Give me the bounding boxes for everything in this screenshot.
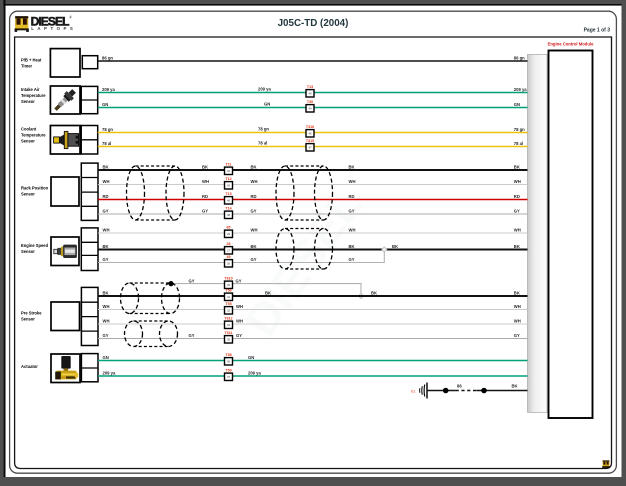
svg-text:T610: T610 [224, 277, 232, 281]
svg-text:26: 26 [227, 262, 231, 266]
svg-text:WH: WH [514, 318, 521, 323]
svg-text:49: 49 [227, 255, 231, 259]
svg-text:46: 46 [227, 199, 231, 203]
svg-text:T611: T611 [225, 331, 233, 335]
svg-text:BK: BK [265, 290, 271, 295]
svg-text:WH: WH [103, 227, 110, 232]
svg-text:T13: T13 [307, 85, 313, 89]
svg-text:LAPTOPS: LAPTOPS [31, 26, 76, 31]
svg-text:209 ya: 209 ya [514, 87, 527, 92]
svg-text:43: 43 [227, 184, 231, 188]
svg-text:31: 31 [227, 295, 231, 299]
svg-text:Engine Speed: Engine Speed [21, 243, 49, 248]
svg-text:78 al: 78 al [514, 141, 523, 146]
svg-text:BK: BK [349, 244, 355, 249]
svg-text:BK: BK [103, 290, 109, 295]
svg-text:GY: GY [103, 333, 109, 338]
svg-text:Engine Control Module: Engine Control Module [548, 41, 594, 46]
svg-text:T316: T316 [306, 125, 314, 129]
svg-text:35: 35 [227, 338, 231, 342]
svg-text:BK: BK [349, 164, 355, 169]
svg-text:GY: GY [202, 208, 208, 213]
svg-text:GN: GN [248, 355, 254, 360]
svg-text:Sensor: Sensor [21, 316, 35, 321]
svg-text:WH: WH [103, 179, 110, 184]
svg-text:GY: GY [103, 257, 109, 262]
svg-text:T12: T12 [225, 177, 231, 181]
svg-text:E1: E1 [411, 389, 415, 393]
svg-text:78 gn: 78 gn [258, 126, 269, 131]
svg-text:WH: WH [251, 227, 258, 232]
svg-text:GN: GN [514, 102, 520, 107]
svg-text:209 ya: 209 ya [248, 370, 261, 375]
svg-text:GY: GY [103, 208, 109, 213]
svg-text:GY: GY [236, 278, 242, 283]
svg-text:Actuator: Actuator [21, 364, 38, 369]
svg-text:Temperature: Temperature [21, 93, 46, 98]
svg-text:WH: WH [103, 304, 110, 309]
svg-text:T612: T612 [224, 317, 232, 321]
svg-text:86 gn: 86 gn [514, 55, 525, 60]
svg-text:209 ya: 209 ya [102, 87, 115, 92]
svg-text:32: 32 [227, 309, 231, 313]
svg-text:78 gn: 78 gn [102, 127, 113, 132]
svg-text:BK: BK [371, 290, 377, 295]
svg-text:Sensor: Sensor [21, 249, 35, 254]
svg-text:RD: RD [349, 194, 355, 199]
svg-text:T56: T56 [225, 289, 231, 293]
svg-text:RD: RD [202, 194, 208, 199]
svg-text:GY: GY [514, 208, 520, 213]
svg-text:86 gn: 86 gn [102, 55, 113, 60]
svg-text:WH: WH [349, 227, 356, 232]
svg-text:Coolant: Coolant [21, 126, 37, 131]
svg-text:J05C-TD (2004): J05C-TD (2004) [278, 18, 349, 29]
svg-text:BK: BK [512, 383, 518, 388]
svg-text:42: 42 [227, 169, 231, 173]
svg-text:GY: GY [251, 257, 257, 262]
svg-text:GY: GY [251, 208, 257, 213]
svg-text:37: 37 [227, 375, 231, 379]
svg-text:Temperature: Temperature [21, 132, 46, 137]
svg-text:86: 86 [457, 383, 462, 388]
svg-text:WH: WH [251, 179, 258, 184]
svg-text:GN: GN [103, 355, 109, 360]
svg-text:Sensor: Sensor [21, 138, 35, 143]
svg-text:WH: WH [514, 227, 521, 232]
svg-text:T315: T315 [306, 139, 314, 143]
svg-text:Rack Position: Rack Position [21, 185, 49, 190]
svg-text:34: 34 [227, 323, 231, 327]
svg-text:209 ya: 209 ya [258, 86, 271, 91]
svg-text:GY: GY [514, 333, 520, 338]
svg-text:WH: WH [514, 304, 521, 309]
svg-text:BK: BK [202, 164, 208, 169]
svg-text:WH: WH [349, 179, 356, 184]
svg-text:Pre Stroke: Pre Stroke [21, 310, 42, 315]
svg-text:T15: T15 [225, 192, 231, 196]
svg-text:GY: GY [189, 333, 195, 338]
svg-text:WH: WH [103, 318, 110, 323]
svg-text:T58: T58 [225, 353, 231, 357]
svg-text:78 al: 78 al [258, 140, 267, 145]
svg-text:T14: T14 [225, 207, 231, 211]
svg-text:P/B + Heat: P/B + Heat [21, 58, 42, 63]
svg-text:WH: WH [202, 179, 209, 184]
svg-text:BK: BK [514, 290, 520, 295]
svg-text:38: 38 [227, 213, 231, 217]
svg-text:44: 44 [308, 107, 312, 111]
svg-text:T11: T11 [226, 163, 232, 167]
svg-text:Sensor: Sensor [21, 99, 35, 104]
svg-text:GN: GN [102, 102, 108, 107]
svg-text:BK: BK [514, 164, 520, 169]
svg-text:WH: WH [514, 179, 521, 184]
svg-text:BK: BK [251, 244, 257, 249]
svg-text:GN: GN [264, 101, 270, 106]
svg-text:BK: BK [392, 244, 398, 249]
svg-text:65: 65 [227, 226, 231, 230]
svg-text:GY: GY [189, 278, 195, 283]
svg-text:T55: T55 [225, 302, 231, 306]
svg-text:36: 36 [227, 360, 231, 364]
svg-text:78 gn: 78 gn [514, 127, 525, 132]
svg-text:Timer: Timer [21, 64, 32, 69]
svg-text:27: 27 [227, 249, 231, 253]
svg-text:BK: BK [251, 164, 257, 169]
svg-text:Intake Air: Intake Air [21, 87, 40, 92]
svg-text:GY: GY [236, 333, 242, 338]
svg-text:BK: BK [103, 164, 109, 169]
svg-text:33: 33 [227, 283, 231, 287]
svg-text:45: 45 [308, 132, 312, 136]
svg-text:RD: RD [251, 194, 257, 199]
svg-text:Page 1 of 3: Page 1 of 3 [584, 27, 611, 33]
svg-text:GY: GY [349, 257, 355, 262]
svg-text:RD: RD [514, 194, 520, 199]
svg-text:GY: GY [349, 208, 355, 213]
svg-text:T30: T30 [307, 100, 313, 104]
svg-text:78 al: 78 al [102, 141, 111, 146]
svg-text:209 ya: 209 ya [103, 370, 116, 375]
svg-text:40: 40 [308, 92, 312, 96]
svg-text:47: 47 [308, 146, 312, 150]
svg-text:28: 28 [227, 242, 231, 246]
svg-text:BK: BK [103, 244, 109, 249]
svg-text:T59: T59 [225, 369, 231, 373]
svg-text:RD: RD [103, 194, 109, 199]
svg-text:BK: BK [514, 244, 520, 249]
svg-text:WH: WH [236, 304, 243, 309]
svg-text:WH: WH [236, 318, 243, 323]
svg-text:29: 29 [227, 232, 231, 236]
svg-text:Sensor: Sensor [21, 191, 35, 196]
